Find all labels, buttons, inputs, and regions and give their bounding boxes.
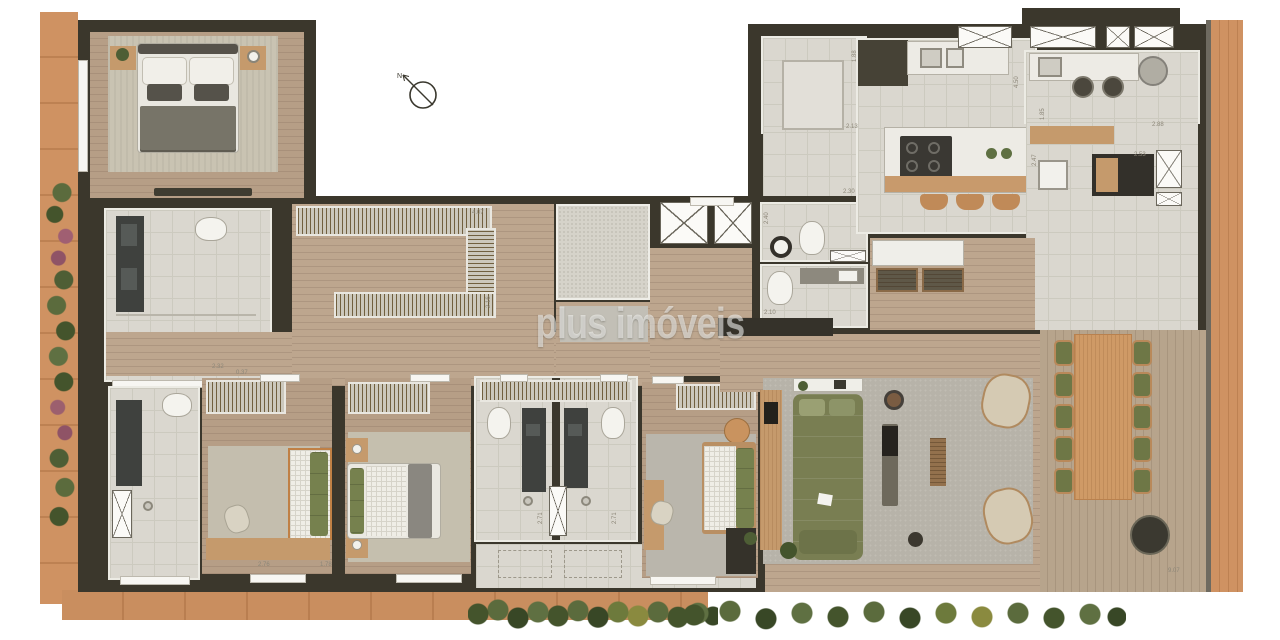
watermark-logo: plus imóveis — [529, 299, 750, 349]
lamp-icon — [352, 444, 362, 454]
side-table-round — [908, 532, 923, 547]
dim-label: 4.07 — [472, 210, 484, 216]
stool — [920, 194, 948, 210]
wine-rack — [922, 268, 964, 292]
shower-door — [830, 250, 866, 262]
sink-basin — [121, 268, 137, 290]
master-window — [78, 60, 88, 172]
dim-label: 9.07 — [1168, 568, 1180, 574]
daybed-cushions — [310, 452, 328, 536]
bedroom1-rack — [206, 380, 286, 414]
planter-plants-bottom-right — [676, 596, 1126, 634]
elevator-shaft — [660, 202, 708, 244]
clock-icon — [247, 50, 260, 63]
laundry-sink — [1038, 57, 1062, 77]
planter-plants-left — [44, 178, 80, 542]
magazine — [817, 493, 833, 506]
deck-border-right — [1206, 20, 1243, 592]
master-bath-window — [112, 380, 210, 388]
sofa-pillow — [829, 399, 855, 416]
master-bed-blanket — [140, 106, 236, 150]
bed-blanket — [408, 464, 432, 538]
bed-duvet — [366, 466, 406, 536]
tv-screen — [882, 426, 898, 456]
bedroom4-bed — [704, 446, 736, 530]
shaft — [1134, 26, 1174, 48]
bath-shelf-row — [480, 380, 632, 402]
pillow — [190, 58, 233, 84]
dim-label: 2.16 — [486, 296, 492, 308]
dining-chair — [1132, 468, 1152, 494]
closet-rack-right — [466, 228, 496, 298]
window — [396, 574, 462, 583]
dim-label: 4.50 — [1014, 76, 1020, 88]
sink-basin — [568, 424, 582, 436]
buffet-cabinet — [872, 240, 964, 266]
dining-table — [1074, 334, 1132, 500]
door-opening — [652, 376, 684, 384]
master-bed-headboard — [138, 44, 238, 54]
coffee-table-round — [884, 390, 904, 410]
dim-label: 2.53 — [1134, 152, 1146, 158]
pouf-round — [1130, 515, 1170, 555]
vanity — [564, 408, 588, 488]
entry-door-opening — [690, 197, 734, 206]
cutting-board — [1096, 158, 1118, 192]
master-bench — [154, 188, 252, 196]
service-bench — [1030, 126, 1114, 144]
dim-label: 2.88 — [1152, 122, 1164, 128]
cushion-dark — [147, 84, 182, 101]
dim-label: 2.47 — [1032, 154, 1038, 166]
shower-head-icon — [523, 496, 533, 506]
dining-chair — [1132, 372, 1152, 398]
stool — [956, 194, 984, 210]
shower-head-icon — [143, 501, 153, 511]
toilet — [488, 408, 510, 438]
floorplan-image: 4.07 2.16 1.88 2.13 2.30 4.50 1.85 2.88 … — [0, 0, 1280, 640]
dim-label: 2.71 — [612, 512, 618, 524]
toilet — [196, 218, 226, 240]
dining-chair — [1054, 436, 1074, 462]
bed-cushions-green — [736, 448, 754, 528]
door-opening — [260, 374, 300, 382]
closet-rack-top — [296, 206, 492, 236]
door-opening — [500, 374, 528, 382]
sink-basin — [526, 424, 540, 436]
dining-chair — [1054, 340, 1074, 366]
door-opening — [410, 374, 450, 382]
dining-chair — [1132, 404, 1152, 430]
burner-icon — [906, 142, 918, 154]
burner-icon — [906, 160, 918, 172]
sink-basin — [838, 270, 858, 282]
dim-label: 1.88 — [852, 50, 858, 62]
plant-icon — [780, 542, 797, 559]
sofa-chaise — [799, 530, 857, 554]
ghost-table — [564, 550, 622, 578]
suite2-vanity — [116, 400, 142, 486]
laundry-tub — [1138, 56, 1168, 86]
bedroom1-desk — [206, 538, 330, 560]
dim-label: 2.32 — [212, 364, 224, 370]
toilet — [800, 222, 824, 254]
laptop-icon — [834, 380, 846, 389]
pillow — [143, 58, 186, 84]
dim-label: 2.30 — [843, 189, 855, 195]
dining-chair — [1054, 372, 1074, 398]
sofa-pillow — [799, 399, 825, 416]
door-opening — [600, 374, 628, 382]
plant-icon — [798, 381, 808, 391]
dim-label: 2.40 — [764, 212, 770, 224]
kitchen-floor-left — [763, 132, 858, 196]
shower-door — [549, 486, 567, 536]
shaft-small — [1156, 192, 1182, 206]
sink-basin — [121, 224, 137, 246]
window — [650, 576, 716, 585]
plant-icon — [116, 48, 129, 61]
window — [250, 574, 306, 583]
shaft — [1156, 150, 1182, 188]
plant-icon — [1001, 148, 1012, 159]
dim-label: 1.78 — [320, 562, 332, 568]
slat-bench — [930, 438, 946, 486]
service-sink — [1038, 160, 1068, 190]
shaft — [1030, 26, 1096, 48]
shower-glass — [116, 314, 256, 316]
kitchen-sink — [920, 48, 942, 68]
island-wood-base — [885, 176, 1027, 192]
elevator-shaft — [714, 202, 752, 244]
burner-icon — [928, 142, 940, 154]
dim-label: 1.85 — [1040, 108, 1046, 120]
wine-rack — [876, 268, 918, 292]
ghost-table — [498, 550, 552, 578]
plant-icon — [744, 532, 757, 545]
dining-chair — [1132, 436, 1152, 462]
compass-icon: N — [396, 70, 442, 116]
kitchen-corner-cabinet — [858, 40, 908, 86]
dining-chair — [1054, 404, 1074, 430]
window — [120, 576, 190, 585]
lamp-icon — [352, 540, 362, 550]
cushion-dark — [194, 84, 229, 101]
kitchen-sink — [946, 48, 964, 68]
bed-cushions-green — [350, 468, 364, 534]
dim-label: 2.10 — [764, 310, 776, 316]
dim-label: 0.37 — [236, 370, 248, 376]
dim-label: 2.13 — [846, 124, 858, 130]
elevator-lobby — [556, 204, 650, 300]
compass-north-label: N — [397, 73, 402, 80]
shower-door — [112, 490, 132, 538]
plant-icon — [986, 148, 997, 159]
dining-chair — [1054, 468, 1074, 494]
round-basin — [770, 236, 792, 258]
dryer-icon — [1102, 76, 1124, 98]
stool — [992, 194, 1020, 210]
toilet — [163, 394, 191, 416]
dim-label: 2.76 — [258, 562, 270, 568]
toilet — [602, 408, 624, 438]
bedroom2-rack — [348, 382, 430, 414]
round-side-table — [724, 418, 750, 444]
dim-label: 2.71 — [538, 512, 544, 524]
shower-head-icon — [581, 496, 591, 506]
toilet — [768, 272, 792, 304]
burner-icon — [928, 160, 940, 172]
shaft — [958, 26, 1012, 48]
dining-chair — [1132, 340, 1152, 366]
shaft — [1106, 26, 1130, 48]
pantry-shelving — [782, 60, 844, 130]
washer-icon — [1072, 76, 1094, 98]
tv-icon — [764, 402, 778, 424]
closet-rack-bottom — [334, 292, 496, 318]
vanity — [522, 408, 546, 492]
